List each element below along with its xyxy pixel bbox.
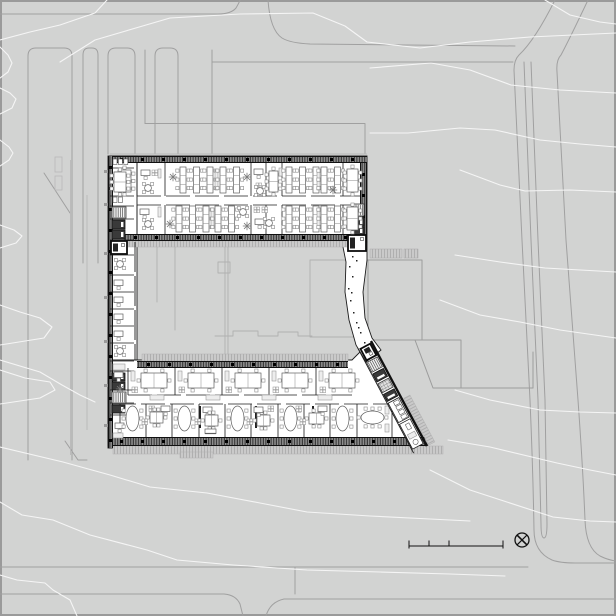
chair bbox=[309, 217, 312, 220]
fixture bbox=[113, 197, 117, 203]
chair bbox=[127, 180, 130, 183]
chair bbox=[359, 171, 362, 174]
facade-column bbox=[336, 363, 339, 366]
chair bbox=[127, 174, 130, 177]
chair bbox=[176, 187, 179, 190]
facade-column bbox=[225, 158, 228, 161]
chair bbox=[257, 413, 260, 416]
facade-column bbox=[109, 313, 112, 316]
chair-pair bbox=[259, 183, 262, 186]
chair bbox=[144, 369, 147, 372]
facade-column bbox=[302, 236, 305, 239]
chair bbox=[122, 409, 125, 412]
facade-column bbox=[246, 158, 249, 161]
cabinet bbox=[225, 371, 229, 381]
facade-apron bbox=[142, 354, 348, 361]
chair-pair bbox=[142, 422, 145, 425]
chair-pair bbox=[132, 390, 135, 393]
chair bbox=[174, 409, 177, 412]
chair bbox=[199, 217, 202, 220]
desk-bench bbox=[286, 206, 292, 232]
chair-pair bbox=[229, 390, 232, 393]
chair bbox=[246, 206, 249, 209]
chair bbox=[265, 187, 268, 190]
chair bbox=[203, 169, 206, 172]
pod-cab bbox=[350, 238, 355, 249]
chair bbox=[122, 425, 125, 428]
chair-pair bbox=[276, 390, 279, 393]
chair bbox=[117, 378, 120, 381]
chair bbox=[295, 226, 298, 229]
chair bbox=[264, 427, 267, 430]
fixture bbox=[113, 159, 117, 165]
chair bbox=[224, 226, 227, 229]
chair bbox=[359, 217, 362, 220]
chair bbox=[211, 226, 214, 229]
facade-column bbox=[372, 440, 375, 443]
chair bbox=[253, 419, 256, 422]
facade-column bbox=[315, 363, 318, 366]
chair-pair bbox=[179, 387, 182, 390]
chair bbox=[285, 369, 288, 372]
chair-pair bbox=[135, 387, 138, 390]
cabinet bbox=[318, 395, 332, 400]
sofa bbox=[205, 429, 216, 434]
chair-pair bbox=[320, 387, 323, 390]
chair-pair bbox=[152, 173, 155, 176]
chair bbox=[229, 187, 232, 190]
facade-column bbox=[246, 440, 249, 443]
chair bbox=[332, 417, 335, 420]
desk-bench bbox=[220, 167, 226, 193]
facade-column bbox=[176, 236, 179, 239]
facade-column bbox=[134, 236, 137, 239]
facade-stub bbox=[104, 203, 108, 206]
chair bbox=[317, 217, 320, 220]
chair bbox=[298, 425, 301, 428]
chair bbox=[219, 419, 222, 422]
facade-column bbox=[344, 236, 347, 239]
oval-table bbox=[361, 411, 384, 424]
facade-column bbox=[239, 236, 242, 239]
chair bbox=[255, 369, 258, 372]
paving-strip bbox=[370, 249, 402, 258]
chair bbox=[237, 215, 240, 218]
chair bbox=[137, 379, 140, 382]
desk bbox=[254, 407, 263, 413]
fixture bbox=[118, 197, 122, 203]
chair bbox=[309, 226, 312, 229]
chair-pair bbox=[155, 173, 158, 176]
chair bbox=[332, 409, 335, 412]
chair bbox=[172, 217, 175, 220]
chair bbox=[359, 179, 362, 182]
facade-column bbox=[109, 439, 112, 442]
chair bbox=[203, 178, 206, 181]
chair-pair bbox=[182, 390, 185, 393]
chair bbox=[114, 267, 117, 270]
chair bbox=[161, 369, 164, 372]
chair-pair bbox=[135, 390, 138, 393]
chair bbox=[208, 369, 211, 372]
chair bbox=[227, 409, 230, 412]
chair bbox=[343, 225, 346, 228]
desk bbox=[114, 280, 123, 286]
chair-pair bbox=[149, 406, 152, 409]
facade-column bbox=[362, 194, 365, 197]
facade-column bbox=[109, 292, 112, 295]
chair bbox=[343, 171, 346, 174]
chair bbox=[144, 176, 147, 179]
chair bbox=[343, 179, 346, 182]
chair-pair bbox=[198, 419, 201, 422]
chair bbox=[241, 178, 244, 181]
facade-column bbox=[120, 440, 123, 443]
desk-bench bbox=[194, 167, 200, 193]
chair bbox=[184, 379, 187, 382]
desk bbox=[254, 169, 263, 175]
desk-bench bbox=[180, 167, 186, 193]
chair bbox=[241, 187, 244, 190]
chair bbox=[140, 425, 143, 428]
chair-pair bbox=[323, 387, 326, 390]
chair bbox=[332, 425, 335, 428]
chair bbox=[295, 187, 298, 190]
chair-pair bbox=[265, 210, 268, 213]
chair bbox=[282, 169, 285, 172]
chair bbox=[350, 417, 353, 420]
chair bbox=[110, 174, 113, 177]
chair bbox=[359, 187, 362, 190]
chair bbox=[211, 217, 214, 220]
desk bbox=[140, 209, 149, 215]
chair bbox=[272, 167, 275, 170]
chair bbox=[309, 178, 312, 181]
chair bbox=[385, 416, 388, 419]
chair bbox=[295, 217, 298, 220]
facade-column bbox=[231, 363, 234, 366]
chair bbox=[317, 208, 320, 211]
chair bbox=[295, 178, 298, 181]
chair-pair bbox=[226, 387, 229, 390]
desk-bench bbox=[207, 167, 213, 193]
chair bbox=[350, 409, 353, 412]
chair-pair bbox=[250, 422, 253, 425]
oval-table bbox=[336, 406, 349, 431]
facade-column bbox=[225, 440, 228, 443]
chair bbox=[172, 208, 175, 211]
chair-pair bbox=[132, 387, 135, 390]
chair bbox=[151, 182, 154, 185]
walkway-dot bbox=[348, 288, 350, 290]
chair bbox=[192, 417, 195, 420]
facade-band bbox=[124, 234, 352, 241]
chair bbox=[224, 208, 227, 211]
chair-pair bbox=[145, 422, 148, 425]
facade-stub bbox=[104, 384, 108, 387]
chair bbox=[302, 389, 305, 392]
chair bbox=[271, 419, 274, 422]
chair-pair bbox=[142, 419, 145, 422]
chair bbox=[282, 178, 285, 181]
chair bbox=[237, 206, 240, 209]
chair bbox=[272, 226, 275, 229]
chair bbox=[224, 217, 227, 220]
desk-bench bbox=[300, 167, 306, 193]
chair bbox=[378, 407, 381, 410]
chair bbox=[227, 425, 230, 428]
chair bbox=[265, 173, 268, 176]
chair-pair bbox=[247, 422, 250, 425]
facade-column bbox=[294, 363, 297, 366]
chair bbox=[236, 226, 239, 229]
desk-bench bbox=[203, 206, 209, 232]
desk-bench bbox=[335, 167, 341, 193]
desk bbox=[255, 219, 264, 225]
chair bbox=[185, 208, 188, 211]
facade-column bbox=[288, 440, 291, 443]
chair bbox=[216, 187, 219, 190]
chair-pair bbox=[195, 419, 198, 422]
chair bbox=[371, 407, 374, 410]
chair bbox=[255, 389, 258, 392]
walkway-dot bbox=[364, 342, 366, 344]
desk bbox=[114, 331, 123, 337]
chair bbox=[343, 217, 346, 220]
chair bbox=[265, 180, 268, 183]
chair bbox=[229, 178, 232, 181]
chair-pair bbox=[262, 210, 265, 213]
chair bbox=[309, 379, 312, 382]
cabinet bbox=[385, 424, 389, 432]
chair-pair bbox=[262, 207, 265, 210]
chair-pair bbox=[155, 170, 158, 173]
desk-bench bbox=[215, 206, 221, 232]
chair-pair bbox=[271, 409, 274, 412]
facade-stub bbox=[104, 252, 108, 255]
desk-bench bbox=[335, 206, 341, 232]
cabinet bbox=[385, 406, 389, 414]
chair bbox=[357, 416, 360, 419]
chair bbox=[142, 191, 145, 194]
facade-column bbox=[109, 271, 112, 274]
facade-column bbox=[109, 166, 112, 169]
chair bbox=[114, 345, 117, 348]
chair bbox=[110, 180, 113, 183]
facade-column bbox=[309, 158, 312, 161]
chair-pair bbox=[303, 419, 306, 422]
chair bbox=[343, 209, 346, 212]
chair bbox=[351, 193, 354, 196]
walkway-dot bbox=[352, 256, 354, 258]
chair bbox=[199, 208, 202, 211]
chair bbox=[238, 369, 241, 372]
chair bbox=[317, 178, 320, 181]
chair bbox=[378, 425, 381, 428]
facade-column bbox=[323, 236, 326, 239]
desk-bench bbox=[190, 206, 196, 232]
chair bbox=[280, 425, 283, 428]
chair bbox=[349, 389, 352, 392]
facade-column bbox=[351, 440, 354, 443]
chair-pair bbox=[271, 406, 274, 409]
chair bbox=[164, 416, 167, 419]
chair bbox=[123, 354, 126, 357]
chair bbox=[189, 169, 192, 172]
facade-column bbox=[260, 236, 263, 239]
fixture bbox=[124, 159, 128, 165]
facade-stub bbox=[104, 296, 108, 299]
oval-table bbox=[178, 406, 191, 431]
chair bbox=[153, 408, 156, 411]
chair-pair bbox=[145, 419, 148, 422]
chair-pair bbox=[250, 419, 253, 422]
desk bbox=[161, 406, 170, 412]
cabinet bbox=[158, 169, 161, 178]
facade-column bbox=[155, 236, 158, 239]
chair bbox=[317, 187, 320, 190]
chair bbox=[132, 179, 135, 182]
chair bbox=[330, 226, 333, 229]
walkway-dot bbox=[351, 292, 353, 294]
chair bbox=[157, 424, 160, 427]
chair bbox=[264, 411, 267, 414]
site-ground bbox=[0, 0, 616, 616]
chair bbox=[295, 169, 298, 172]
facade-stub bbox=[104, 170, 108, 173]
chair bbox=[142, 227, 145, 230]
chair bbox=[132, 187, 135, 190]
chair bbox=[176, 178, 179, 181]
chair bbox=[211, 208, 214, 211]
chair bbox=[142, 182, 145, 185]
chair-pair bbox=[179, 390, 182, 393]
chair bbox=[142, 218, 145, 221]
chair bbox=[330, 178, 333, 181]
chair bbox=[330, 169, 333, 172]
chair bbox=[203, 187, 206, 190]
chair bbox=[343, 187, 346, 190]
chair bbox=[309, 187, 312, 190]
walkway-dot bbox=[350, 300, 352, 302]
chair bbox=[192, 425, 195, 428]
chair bbox=[174, 417, 177, 420]
chair bbox=[227, 417, 230, 420]
desk-bench bbox=[286, 167, 292, 193]
facade-column bbox=[204, 440, 207, 443]
facade-column bbox=[109, 355, 112, 358]
core-slot bbox=[121, 232, 123, 237]
facade-column bbox=[162, 440, 165, 443]
facade-column bbox=[210, 363, 213, 366]
chair bbox=[356, 379, 359, 382]
facade-column bbox=[183, 440, 186, 443]
facade-column bbox=[162, 158, 165, 161]
chair-pair bbox=[299, 406, 302, 409]
desk bbox=[318, 406, 327, 412]
chair bbox=[321, 412, 324, 415]
facade-column bbox=[109, 208, 112, 211]
chair bbox=[208, 411, 211, 414]
chair-pair bbox=[229, 387, 232, 390]
chair bbox=[114, 258, 117, 261]
chair bbox=[144, 389, 147, 392]
facade-stub bbox=[104, 340, 108, 343]
cabinet bbox=[113, 364, 125, 370]
chair bbox=[189, 178, 192, 181]
chair bbox=[168, 379, 171, 382]
desk-bench bbox=[229, 206, 235, 232]
chair bbox=[325, 379, 328, 382]
paving-strip bbox=[404, 249, 418, 258]
chair-pair bbox=[254, 210, 257, 213]
core-slot bbox=[360, 229, 362, 233]
chair bbox=[110, 187, 113, 190]
chair bbox=[257, 175, 260, 178]
chair bbox=[123, 193, 126, 196]
chair bbox=[172, 226, 175, 229]
fixture bbox=[118, 159, 122, 165]
facade-column bbox=[267, 440, 270, 443]
walkway-dot bbox=[360, 332, 362, 334]
chair bbox=[191, 369, 194, 372]
chair bbox=[215, 379, 218, 382]
chair bbox=[262, 379, 265, 382]
chair bbox=[231, 379, 234, 382]
chair bbox=[280, 409, 283, 412]
facade-column bbox=[252, 363, 255, 366]
chair bbox=[332, 369, 335, 372]
chair bbox=[371, 425, 374, 428]
facade-column bbox=[351, 158, 354, 161]
chair bbox=[359, 225, 362, 228]
chair bbox=[241, 169, 244, 172]
oval-table bbox=[231, 406, 244, 431]
chair bbox=[127, 187, 130, 190]
chair bbox=[312, 409, 315, 412]
chair bbox=[174, 425, 177, 428]
facade-column bbox=[109, 418, 112, 421]
chair bbox=[285, 389, 288, 392]
chair-pair bbox=[152, 170, 155, 173]
chair bbox=[185, 217, 188, 220]
chair-pair bbox=[268, 406, 271, 409]
chair bbox=[208, 389, 211, 392]
chair-pair bbox=[149, 409, 152, 412]
site-plan-canvas bbox=[0, 0, 616, 616]
chair bbox=[185, 226, 188, 229]
chair bbox=[309, 169, 312, 172]
facade-column bbox=[204, 158, 207, 161]
chair-pair bbox=[247, 419, 250, 422]
chair-pair bbox=[273, 387, 276, 390]
chair bbox=[245, 409, 248, 412]
facade-column bbox=[330, 440, 333, 443]
chair bbox=[157, 408, 160, 411]
chair bbox=[246, 215, 249, 218]
chair bbox=[123, 258, 126, 261]
chair bbox=[123, 267, 126, 270]
cabinet bbox=[158, 207, 161, 217]
facade-column bbox=[309, 440, 312, 443]
chair bbox=[282, 187, 285, 190]
desk-bench bbox=[300, 206, 306, 232]
chair bbox=[317, 226, 320, 229]
chair bbox=[282, 226, 285, 229]
desk-bench bbox=[234, 167, 240, 193]
chair bbox=[312, 425, 315, 428]
chair-pair bbox=[254, 207, 257, 210]
